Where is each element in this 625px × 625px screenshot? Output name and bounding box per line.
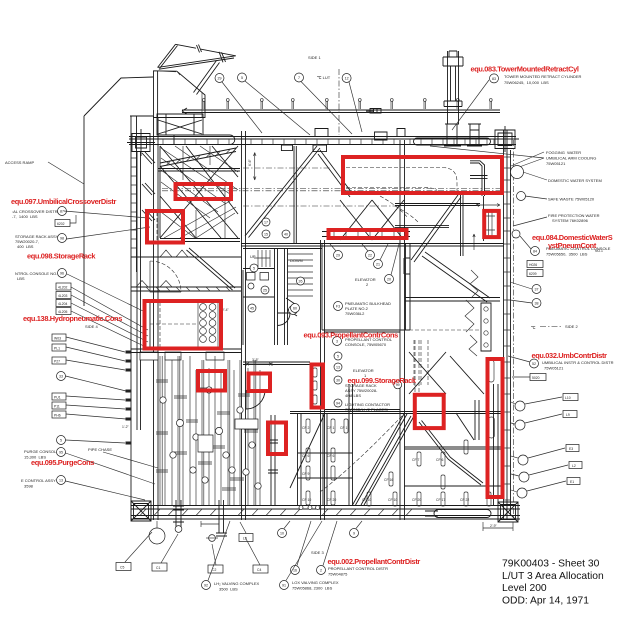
svg-text:21: 21 [376, 262, 380, 266]
svg-text:UMBILICAL ARM COOLING: UMBILICAL ARM COOLING [546, 156, 596, 161]
svg-text:PROPELLANT CONTROL DISTR: PROPELLANT CONTROL DISTR [328, 566, 388, 571]
svg-text:DOWN: DOWN [290, 258, 303, 263]
svg-text:equ.097.UmbilicalCrossoverDist: equ.097.UmbilicalCrossoverDistr [11, 197, 116, 206]
svg-text:PIPE CHASE: PIPE CHASE [88, 447, 112, 452]
svg-text:E CONTROL ASSY: E CONTROL ASSY [21, 478, 56, 483]
svg-text:29: 29 [336, 253, 340, 257]
svg-text:equ.099.StorageRack: equ.099.StorageRack [348, 376, 417, 385]
svg-text:10: 10 [280, 531, 284, 535]
svg-text:6'-6": 6'-6" [248, 158, 252, 166]
svg-text:CF 1: CF 1 [340, 426, 347, 430]
svg-text:CF 9: CF 9 [302, 472, 309, 476]
svg-text:NO.1: NO.1 [595, 249, 603, 253]
svg-text:98: 98 [60, 236, 64, 240]
svg-text:LOX VALVING COMPLEX: LOX VALVING COMPLEX [292, 580, 339, 585]
svg-text:P11: P11 [54, 405, 60, 409]
svg-text:6202: 6202 [57, 222, 65, 226]
svg-text:CF 6: CF 6 [436, 458, 443, 462]
svg-text:H026: H026 [529, 263, 537, 267]
svg-text:4H8 LBS: 4H8 LBS [345, 393, 361, 398]
svg-text:95: 95 [59, 450, 63, 454]
svg-text:12: 12 [345, 76, 349, 80]
svg-text:5: 5 [241, 76, 243, 80]
svg-text:UMBILICAL INSTR & CONTROL DIS: UMBILICAL INSTR & CONTROL DISTR [542, 360, 614, 365]
svg-text:P27: P27 [54, 360, 60, 364]
svg-text:3598: 3598 [24, 484, 34, 489]
svg-text:LBS: LBS [17, 276, 25, 281]
svg-text:℃ LUT: ℃ LUT [317, 75, 331, 80]
svg-text:TOWER MOUNTED RETRACT CYLINDER: TOWER MOUNTED RETRACT CYLINDER [504, 74, 582, 79]
svg-text:16: 16 [293, 568, 297, 572]
svg-text:CF 16: CF 16 [384, 478, 393, 482]
svg-text:33: 33 [59, 374, 63, 378]
svg-text:ODD: Apr 14, 1971: ODD: Apr 14, 1971 [502, 595, 589, 606]
svg-text:75W036L2: 75W036L2 [345, 311, 365, 316]
svg-text:equ.098.StorageRack: equ.098.StorageRack [27, 252, 96, 261]
svg-text:75W05868, 2300 LBS: 75W05868, 2300 LBS [292, 586, 333, 591]
svg-text:DOMESTIC WATER SYSTEM: DOMESTIC WATER SYSTEM [548, 178, 602, 183]
svg-text:1'-2": 1'-2" [122, 425, 130, 429]
svg-text:4L204: 4L204 [58, 302, 68, 306]
svg-text:25: 25 [263, 288, 267, 292]
svg-text:75W06245, 10,000 LBS: 75W06245, 10,000 LBS [504, 80, 549, 85]
svg-text:equ.138.Hydropneumatic.Cons: equ.138.Hydropneumatic.Cons [23, 314, 122, 323]
svg-text:15: 15 [264, 232, 268, 236]
svg-text:SIDE 2: SIDE 2 [565, 324, 578, 329]
svg-text:30: 30 [336, 378, 340, 382]
svg-text:40: 40 [284, 232, 288, 236]
svg-text:CF 2: CF 2 [302, 426, 309, 430]
svg-text:L2: L2 [572, 464, 576, 468]
svg-text:equ.032.UmbContrDistr: equ.032.UmbContrDistr [532, 351, 608, 360]
svg-text:equ.093.PropellantContrCons: equ.093.PropellantContrCons [304, 331, 399, 340]
svg-text:PL1: PL1 [54, 347, 60, 351]
svg-text:CF 10: CF 10 [302, 498, 311, 502]
svg-text:4L202: 4L202 [58, 286, 68, 290]
svg-text:CF 10: CF 10 [362, 498, 371, 502]
svg-text:PURGE CONSOLE: PURGE CONSOLE [24, 449, 59, 454]
svg-text:LH₂ VALVING COMPLEX: LH₂ VALVING COMPLEX [214, 581, 260, 586]
svg-text:75W05650, 3500 LBS: 75W05650, 3500 LBS [546, 252, 588, 257]
svg-text:L/UT 3 Area Allocation: L/UT 3 Area Allocation [502, 571, 604, 582]
svg-text:℃: ℃ [531, 325, 536, 330]
svg-text:PH6: PH6 [54, 414, 61, 418]
svg-text:75W05121: 75W05121 [544, 366, 564, 371]
svg-text:L10: L10 [565, 396, 571, 400]
svg-text:5: 5 [253, 266, 255, 270]
svg-text:2'-9": 2'-9" [490, 524, 498, 528]
svg-text:C1: C1 [156, 566, 160, 570]
svg-text:91: 91 [282, 583, 286, 587]
svg-text:-7, 1400 LBS: -7, 1400 LBS [12, 214, 38, 219]
svg-text:C4: C4 [257, 568, 261, 572]
svg-text:E3: E3 [569, 447, 573, 451]
svg-text:37: 37 [535, 287, 539, 291]
svg-text:2: 2 [320, 568, 322, 572]
svg-text:SIDE 4: SIDE 4 [85, 324, 98, 329]
svg-text:5: 5 [337, 354, 339, 358]
svg-text:SAFE WASTE 75W05120: SAFE WASTE 75W05120 [548, 197, 595, 202]
svg-text:5: 5 [60, 438, 62, 442]
svg-text:SYSTEM 76K02896: SYSTEM 76K02896 [552, 218, 589, 223]
svg-text:L9: L9 [566, 413, 570, 417]
svg-text:CF 20: CF 20 [327, 498, 336, 502]
svg-text:equ.095.PurgeCons: equ.095.PurgeCons [31, 458, 94, 467]
svg-text:Level 200: Level 200 [502, 583, 547, 594]
svg-text:94: 94 [336, 401, 340, 405]
svg-text:29: 29 [218, 76, 222, 80]
svg-text:13: 13 [59, 478, 63, 482]
svg-text:ACCESS RAMP: ACCESS RAMP [5, 160, 34, 165]
svg-text:3: 3 [336, 339, 338, 343]
svg-text:20: 20 [387, 277, 391, 281]
svg-text:400 LBS: 400 LBS [17, 244, 34, 249]
svg-text:7: 7 [298, 76, 300, 80]
svg-text:F3: F3 [336, 304, 340, 308]
svg-text:SIDE 3: SIDE 3 [311, 550, 324, 555]
svg-text:52: 52 [532, 362, 536, 366]
svg-text:79K00403 - Sheet 30: 79K00403 - Sheet 30 [502, 559, 600, 570]
svg-text:3'-5": 3'-5" [252, 358, 260, 362]
svg-text:CONSOLE, 75W05670: CONSOLE, 75W05670 [345, 342, 387, 347]
svg-text:6209: 6209 [529, 272, 537, 276]
svg-text:45: 45 [250, 306, 254, 310]
svg-text:CF 22: CF 22 [460, 498, 469, 502]
svg-text:PU1: PU1 [54, 396, 61, 400]
svg-text:E1: E1 [570, 480, 574, 484]
svg-text:C5: C5 [120, 566, 124, 570]
svg-text:FOGGING WATER: FOGGING WATER [546, 150, 581, 155]
svg-text:38: 38 [535, 301, 539, 305]
svg-text:W03: W03 [54, 337, 61, 341]
svg-text:87: 87 [60, 209, 64, 213]
svg-text:5020: 5020 [532, 376, 540, 380]
svg-text:2'-4": 2'-4" [222, 308, 230, 312]
svg-text:CF 20: CF 20 [412, 498, 421, 502]
svg-text:96: 96 [60, 271, 64, 275]
svg-text:equ.083.TowerMountedRetractCyl: equ.083.TowerMountedRetractCyl [471, 65, 579, 74]
svg-text:60: 60 [293, 306, 297, 310]
svg-text:CF 17: CF 17 [436, 498, 445, 502]
svg-text:83: 83 [492, 77, 496, 81]
svg-text:equ.002.PropellantContrDistr: equ.002.PropellantContrDistr [328, 557, 421, 566]
svg-text:CF 6: CF 6 [302, 454, 309, 458]
svg-text:CF 1: CF 1 [327, 426, 334, 430]
svg-text:13: 13 [336, 365, 340, 369]
svg-text:22: 22 [368, 253, 372, 257]
svg-text:75W05121: 75W05121 [546, 161, 566, 166]
svg-text:92: 92 [204, 583, 208, 587]
svg-text:17: 17 [264, 220, 268, 224]
svg-text:26: 26 [299, 279, 303, 283]
svg-text:CF 7: CF 7 [412, 458, 419, 462]
svg-text:CF 10: CF 10 [388, 498, 397, 502]
svg-text:CF 6: CF 6 [327, 454, 334, 458]
svg-text:9: 9 [353, 531, 355, 535]
svg-text:4L203: 4L203 [58, 294, 68, 298]
svg-text:75W04875: 75W04875 [328, 572, 348, 577]
svg-text:ystPneumCont: ystPneumCont [548, 241, 597, 250]
svg-text:SIDE 1: SIDE 1 [308, 55, 321, 60]
svg-text:3500 LBS: 3500 LBS [219, 587, 238, 592]
svg-text:84: 84 [533, 249, 537, 253]
